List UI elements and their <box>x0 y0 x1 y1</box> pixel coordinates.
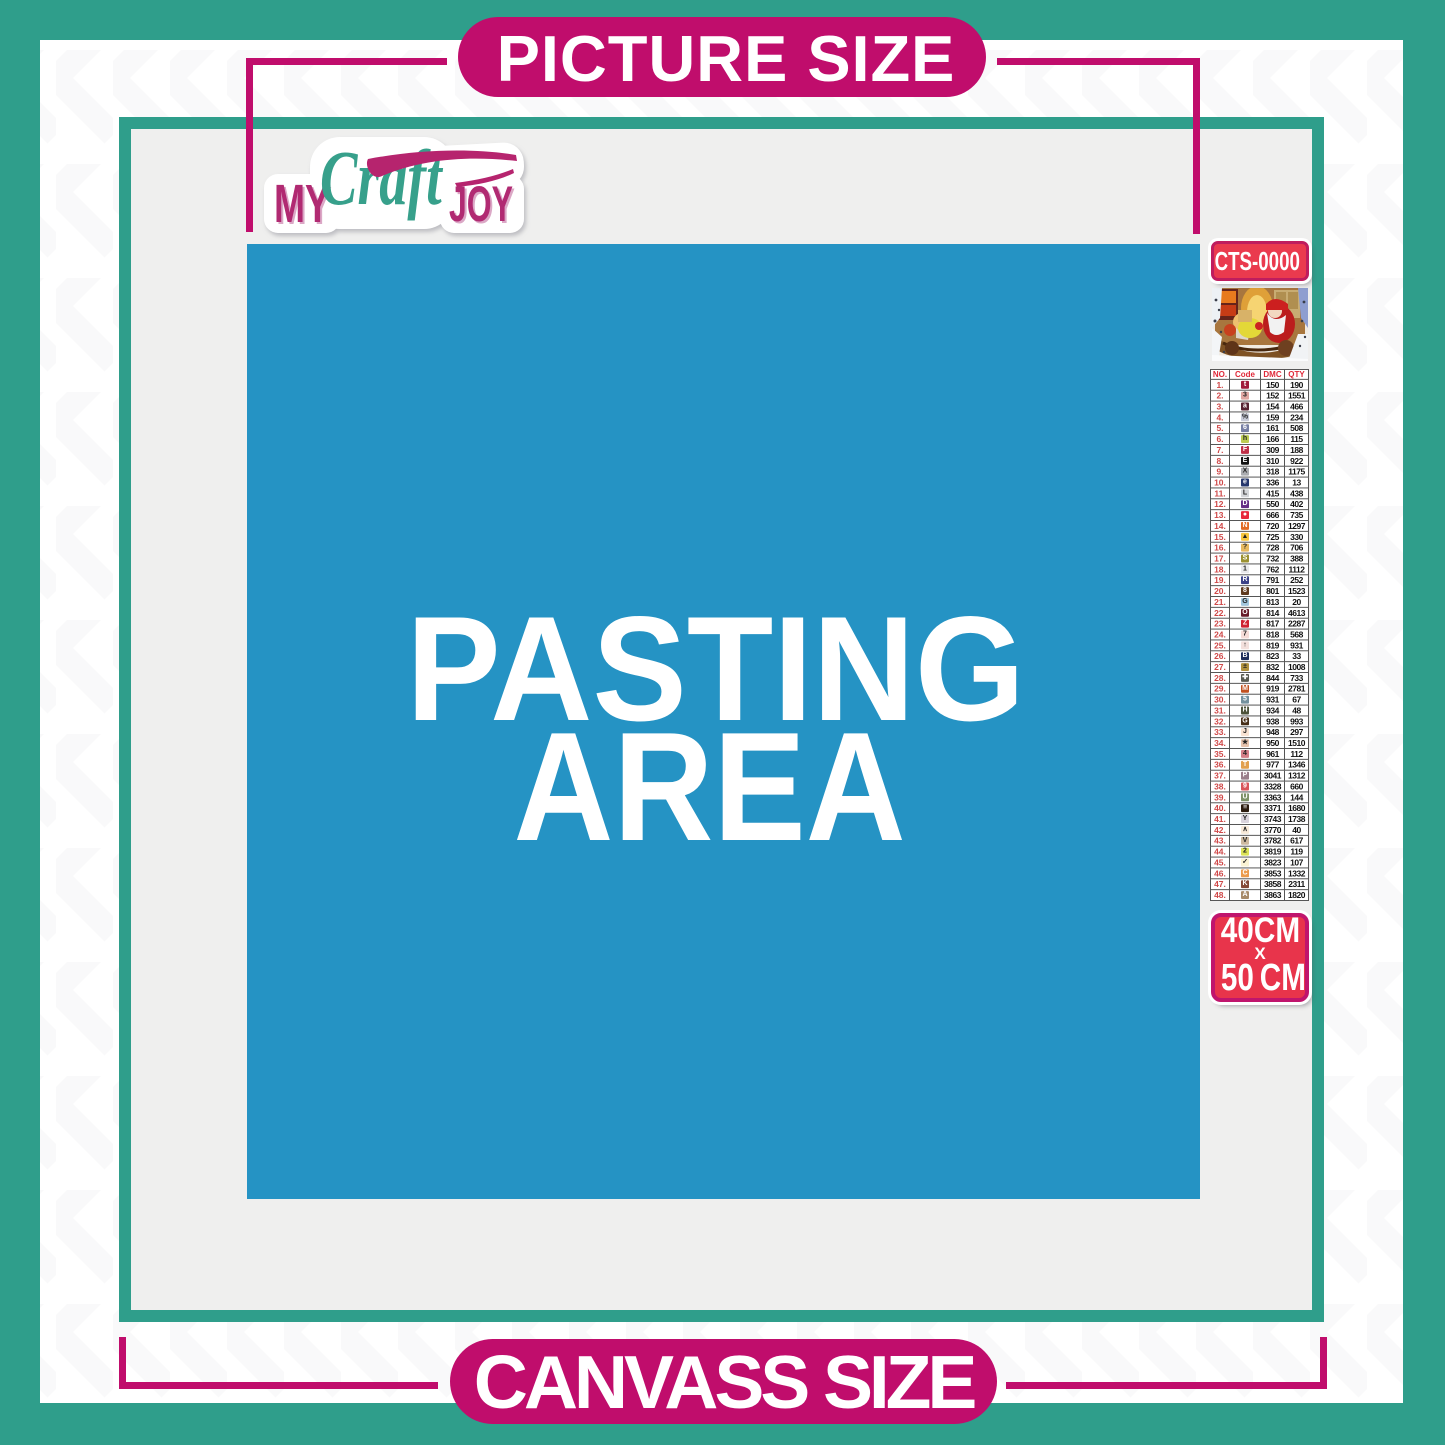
svg-text:JOY: JOY <box>449 176 513 232</box>
svg-text:Craft: Craft <box>320 134 443 221</box>
